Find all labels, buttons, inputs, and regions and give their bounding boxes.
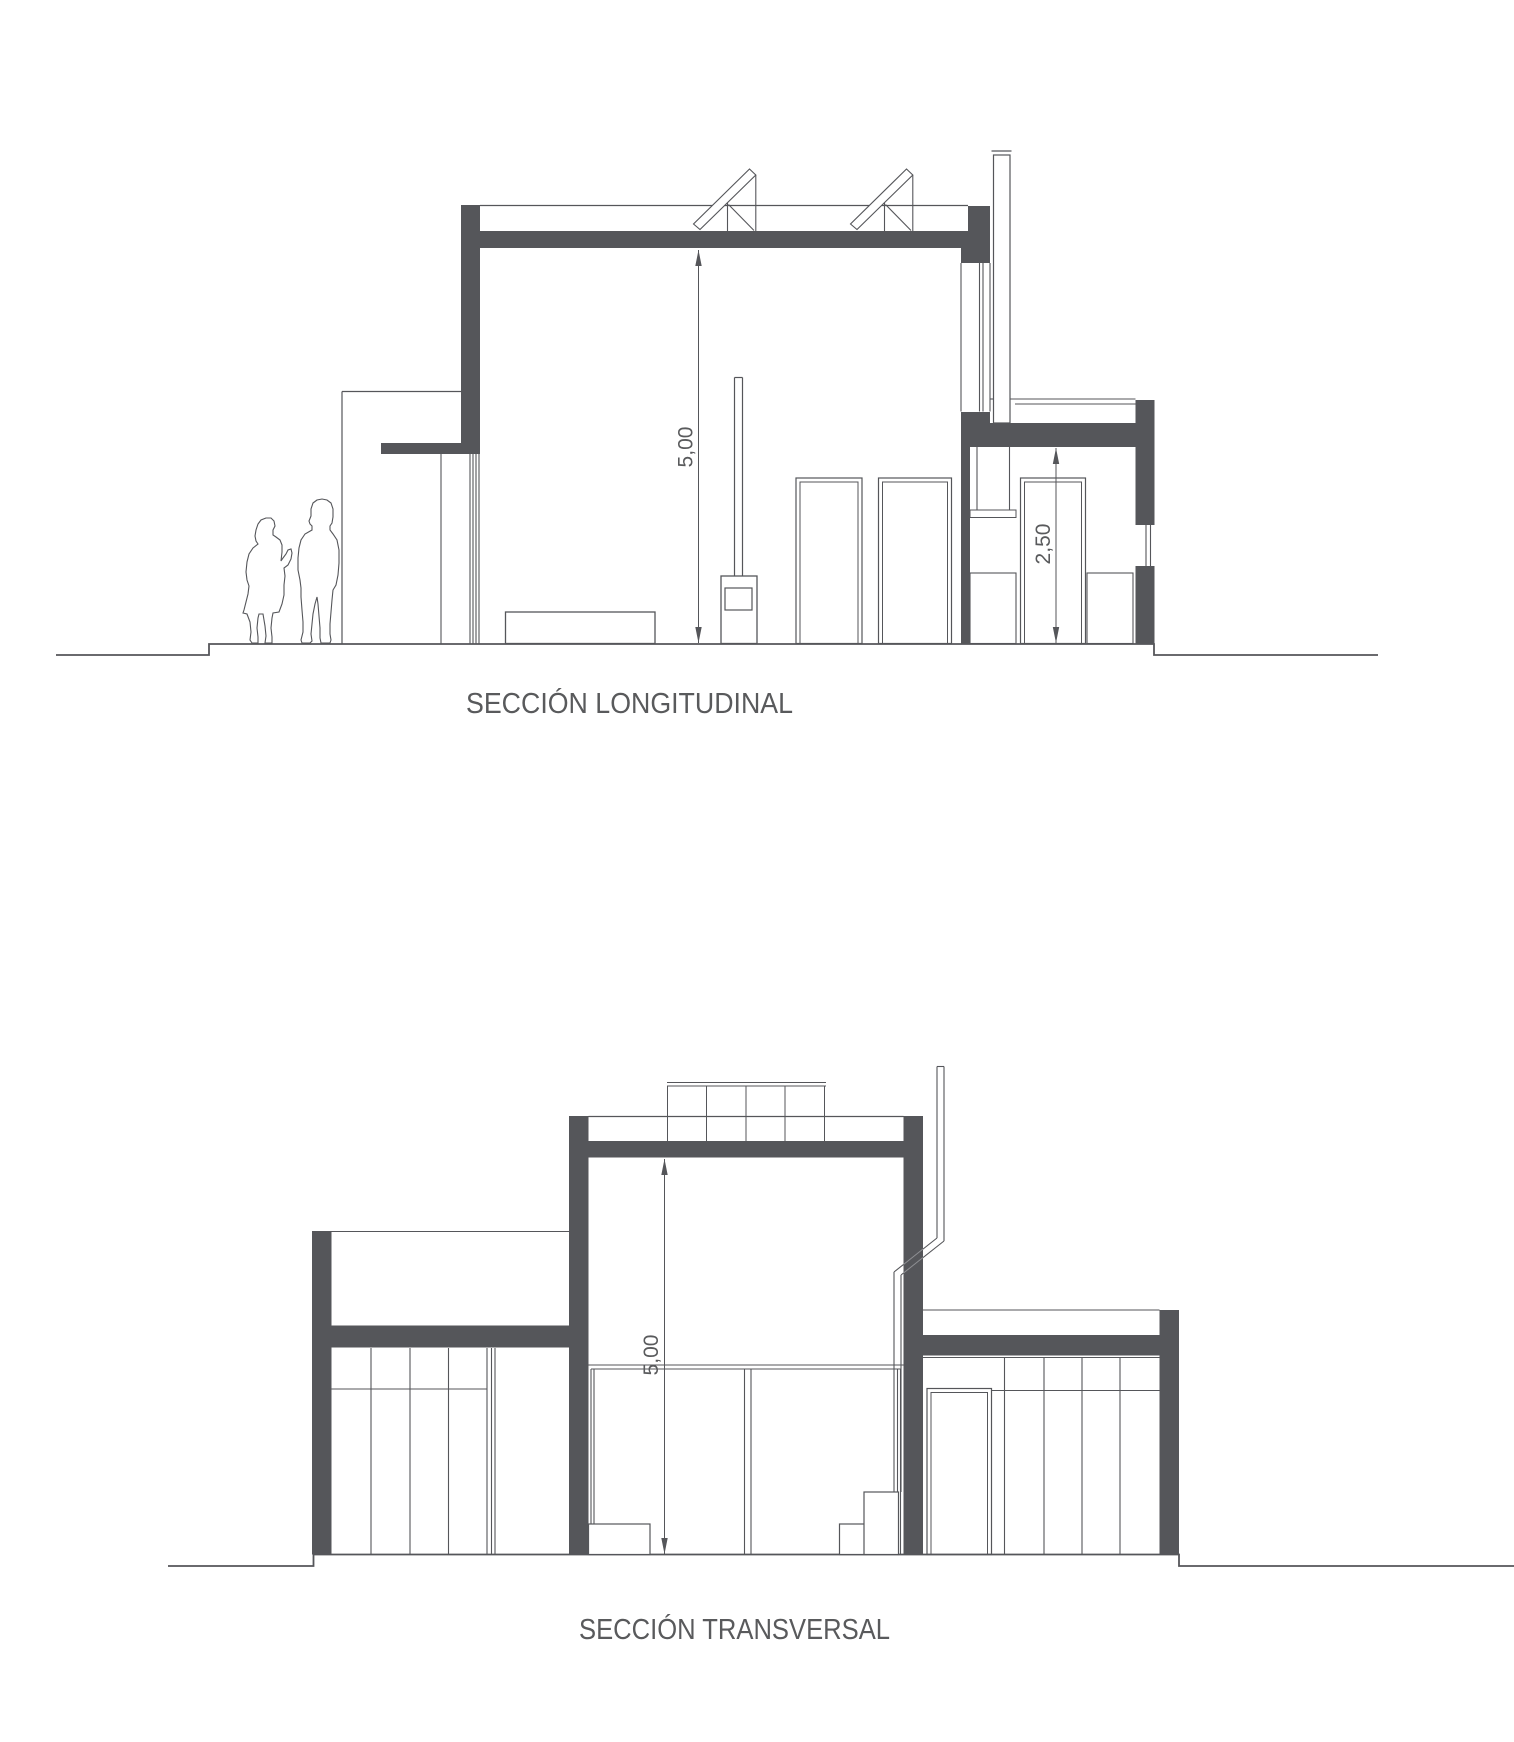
svg-text:2,50: 2,50 — [1032, 524, 1055, 565]
svg-text:SECCIÓN LONGITUDINAL: SECCIÓN LONGITUDINAL — [466, 687, 793, 720]
svg-text:SECCIÓN TRANSVERSAL: SECCIÓN TRANSVERSAL — [579, 1613, 890, 1646]
svg-text:5,00: 5,00 — [640, 1335, 663, 1376]
svg-text:5,00: 5,00 — [675, 427, 698, 468]
